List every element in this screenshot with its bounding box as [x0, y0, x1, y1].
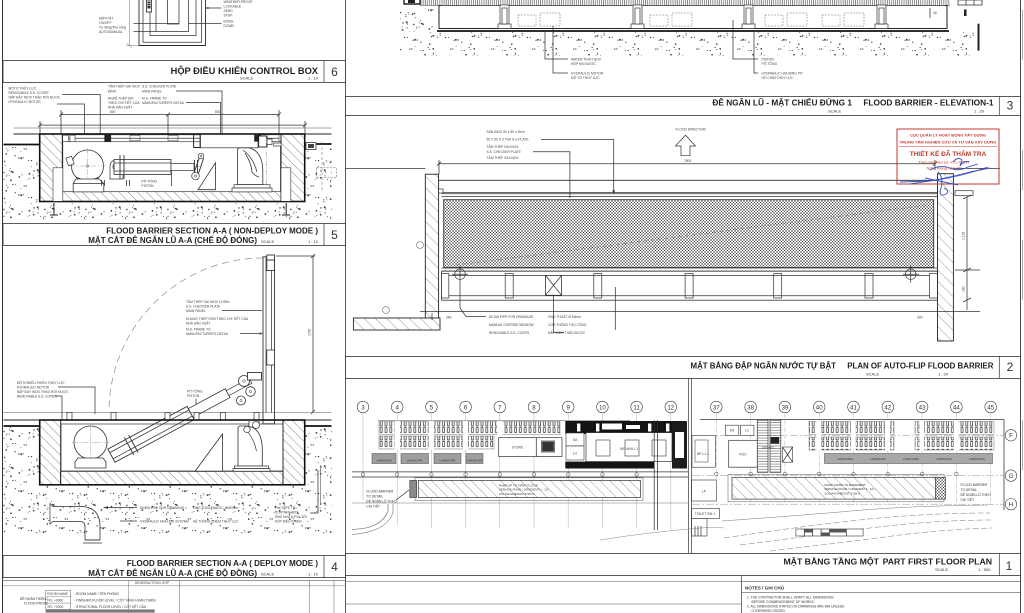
svg-text:DOWN: DOWN [224, 24, 235, 28]
svg-text:HỆ THỐNG CHÊM THỦY LỰC: HỆ THỐNG CHÊM THỦY LỰC [193, 519, 239, 524]
svg-text:ĐÍNH: ĐÍNH [108, 90, 117, 94]
svg-text:MAIN PANEL: MAIN PANEL [186, 309, 206, 313]
svg-text:360: 360 [446, 316, 452, 320]
svg-text:ĐÊ NGĂN LŨ THEO: ĐÊ NGĂN LŨ THEO [961, 492, 992, 497]
svg-text:1 : 10: 1 : 10 [308, 572, 319, 577]
svg-text:MANUFACTURER'S DETAIL: MANUFACTURER'S DETAIL [142, 101, 185, 105]
svg-text:NHÀ SẢN XUẤT: NHÀ SẢN XUẤT [186, 321, 210, 326]
svg-text:5: 5 [331, 228, 338, 242]
svg-text:HỐ CHÌM THỦY LỰC: HỐ CHÌM THỦY LỰC [762, 75, 795, 80]
svg-text:800: 800 [110, 110, 116, 114]
svg-text:NẮP ĐẬY INOX THÁO RỜI ĐƯỢC: NẮP ĐẬY INOX THÁO RỜI ĐƯỢC [17, 389, 69, 394]
svg-text:SFL +0000: SFL +0000 [47, 605, 63, 609]
svg-text:LANDSCAPE: LANDSCAPE [407, 458, 423, 462]
svg-text:1750: 1750 [308, 328, 312, 336]
svg-text:SCALE: SCALE [828, 109, 841, 114]
svg-text:BEFORE COMMENCEMENT OF WORKS.: BEFORE COMMENCEMENT OF WORKS. [752, 600, 815, 604]
svg-text:3: 3 [1007, 99, 1014, 113]
svg-text:1 : 10: 1 : 10 [308, 239, 319, 244]
svg-text:ĐÊ NGĂN LŨ - MẶT CHIẾU ĐỨNG 1: ĐÊ NGĂN LŨ - MẶT CHIẾU ĐỨNG 1 [712, 97, 852, 108]
svg-text:ĐÊ NGĂN LŨ THEO: ĐÊ NGĂN LŨ THEO [366, 499, 397, 504]
svg-text:42: 42 [884, 404, 891, 411]
svg-text:MẶT BẰNG ĐẬP NGĂN NƯỚC TỰ BẬT: MẶT BẰNG ĐẬP NGĂN NƯỚC TỰ BẬT [691, 362, 837, 371]
svg-text:39: 39 [781, 404, 788, 411]
svg-text:6: 6 [331, 65, 338, 79]
svg-text:DA: DA [573, 438, 578, 442]
svg-text:OTHERWISE STATED.: OTHERWISE STATED. [752, 609, 786, 613]
svg-text:PISTON: PISTON [187, 394, 200, 398]
svg-text:ROOM NAME: ROOM NAME [47, 592, 68, 596]
svg-text:TẤM THÉP GAI INOX CHÍNH: TẤM THÉP GAI INOX CHÍNH [186, 299, 230, 304]
svg-text:- ROOM NAME / TÊN PHÒNG: - ROOM NAME / TÊN PHÒNG [74, 591, 119, 596]
svg-text:FLOOD BARRIER: FLOOD BARRIER [961, 483, 989, 487]
svg-text:CONTROL BOX: CONTROL BOX [275, 511, 300, 515]
svg-text:S.S. CHECKER PLATE: S.S. CHECKER PLATE [487, 150, 522, 154]
svg-text:37: 37 [713, 404, 720, 411]
svg-text:7: 7 [498, 404, 502, 411]
svg-text:REMOVABLE S.S. COVER: REMOVABLE S.S. COVER [489, 331, 530, 335]
svg-text:BP-L1-1: BP-L1-1 [697, 452, 709, 456]
svg-text:Tự động/Thủ công: Tự động/Thủ công [99, 26, 126, 30]
svg-text:6: 6 [464, 404, 468, 411]
svg-text:4: 4 [331, 560, 338, 574]
svg-text:PART FIRST FLOOR PLAN: PART FIRST FLOOR PLAN [883, 557, 992, 567]
svg-text:Theo văn bản số: /CC-CO: Theo văn bản số: /CC-CONT [918, 160, 970, 165]
svg-text:F: F [1009, 433, 1013, 440]
svg-text:MAIN PANEL: MAIN PANEL [142, 90, 162, 94]
svg-text:LANDSCAPE: LANDSCAPE [903, 457, 919, 461]
svg-text:1. THE CONTRACTOR SHALL VERIF: 1. THE CONTRACTOR SHALL VERIFY ALL DIMEN… [747, 596, 834, 600]
svg-text:ĐÊ NGĂN THIÊN /: ĐÊ NGĂN THIÊN / [20, 596, 48, 601]
svg-text:LANDSCAPE: LANDSCAPE [969, 457, 985, 461]
svg-text:HYDRAULIC MOTOR: HYDRAULIC MOTOR [571, 72, 604, 76]
svg-text:TRUNG TÂM NGHIÊN CỨU VÀ TƯ VẤN: TRUNG TÂM NGHIÊN CỨU VÀ TƯ VẤN XÂY DỰNG [900, 140, 997, 145]
svg-text:SCALE: SCALE [866, 372, 879, 377]
svg-text:ỒNG THOÁT Ø 80mm: ỒNG THOÁT Ø 80mm [548, 314, 581, 319]
svg-text:2: 2 [1007, 360, 1014, 374]
svg-text:LOCKABLE: LOCKABLE [224, 4, 242, 8]
svg-text:MÁY/TẮT: MÁY/TẮT [99, 16, 113, 21]
svg-text:PISTON: PISTON [142, 184, 155, 188]
svg-text:43: 43 [919, 404, 926, 411]
svg-text:WATER TIGHT BOX: WATER TIGHT BOX [571, 58, 602, 62]
svg-text:NOTES / GHI CHÚ: NOTES / GHI CHÚ [745, 585, 785, 591]
svg-text:3: 3 [361, 404, 365, 411]
svg-text:TẤM THÉP GAI INOX: TẤM THÉP GAI INOX [108, 84, 141, 89]
svg-text:ĐÓNG: ĐÓNG [224, 18, 234, 23]
svg-text:REMOVABLE S.S. COVER: REMOVABLE S.S. COVER [9, 91, 50, 95]
svg-text:5: 5 [430, 404, 434, 411]
svg-text:SCALE: SCALE [935, 567, 948, 572]
svg-text:ỒNG THOÁT NƯỚC Ø 80mm: ỒNG THOÁT NƯỚC Ø 80mm [193, 505, 238, 510]
svg-text:NHÀ SẢN XUẤT: NHÀ SẢN XUẤT [108, 105, 132, 110]
svg-text:LANDSCAPE: LANDSCAPE [440, 458, 456, 462]
svg-text:45: 45 [987, 404, 994, 411]
svg-text:PÍT-TÔNG: PÍT-TÔNG [187, 389, 203, 394]
svg-text:1 : 20: 1 : 20 [974, 109, 985, 114]
svg-text:12: 12 [667, 404, 674, 411]
svg-text:MÔ TƠ THỦY LỰC: MÔ TƠ THỦY LỰC [571, 75, 600, 80]
svg-text:1: 1 [1006, 559, 1013, 573]
svg-text:SCALE: SCALE [240, 76, 253, 81]
svg-text:SÀN INOX 50 x 50 x 3mm: SÀN INOX 50 x 50 x 3mm [487, 130, 526, 134]
svg-text:HYDRAULIC MOTOR: HYDRAULIC MOTOR [17, 386, 50, 390]
svg-text:LANDSCAPE: LANDSCAPE [376, 458, 392, 462]
svg-text:CHI TIẾT: CHI TIẾT [366, 504, 380, 509]
svg-text:HYDRAULIC HOUSING PIT: HYDRAULIC HOUSING PIT [762, 72, 803, 76]
svg-text:80 DIA PIPE FOR DRAINAGE: 80 DIA PIPE FOR DRAINAGE [489, 315, 534, 319]
svg-text:PVC PIPE TO: PVC PIPE TO [275, 506, 296, 510]
svg-text:TẤM THÉP GAI INOX: TẤM THÉP GAI INOX [487, 155, 520, 160]
svg-text:HỘP ĐIỀU KHIỂN CONTROL BOX: HỘP ĐIỀU KHIỂN CONTROL BOX [171, 65, 319, 76]
svg-text:TOILET RM 1: TOILET RM 1 [695, 512, 715, 516]
svg-text:TO DETAIL: TO DETAIL [366, 495, 383, 499]
svg-text:CỤC QUẢN LÝ HOẠT ĐỘNG XÂY DỰNG: CỤC QUẢN LÝ HOẠT ĐỘNG XÂY DỰNG [910, 133, 986, 138]
svg-text:FLOOD-PRONE: FLOOD-PRONE [24, 602, 49, 606]
svg-text:300: 300 [917, 316, 923, 320]
svg-text:80 DIA PIPE FOR DRAINAGE: 80 DIA PIPE FOR DRAINAGE [140, 506, 185, 510]
svg-text:40: 40 [933, 11, 937, 15]
svg-text:SCALE: SCALE [261, 572, 274, 577]
svg-text:S.S. CHECKER PLATE: S.S. CHECKER PLATE [186, 305, 221, 309]
svg-text:7800: 7800 [684, 159, 692, 163]
svg-text:44: 44 [953, 404, 960, 411]
svg-text:AUTO/MANUAL: AUTO/MANUAL [99, 30, 123, 34]
svg-text:DA: DA [730, 429, 735, 433]
svg-text:FLOOD BARRIER: FLOOD BARRIER [366, 490, 394, 494]
svg-text:MẶT CẮT ĐÊ NGĂN LŨ A-A (CHẾ ĐỘ: MẶT CẮT ĐÊ NGĂN LŨ A-A (CHẾ ĐỘ ĐỒNG) [88, 568, 257, 578]
svg-text:SEND: SEND [224, 9, 234, 13]
svg-text:- STRUCTURAL FLOOR LEVEL / CỐT: - STRUCTURAL FLOOR LEVEL / CỐT KẾT CẤU [74, 604, 147, 609]
svg-text:38: 38 [747, 404, 754, 411]
svg-text:FFL +0000: FFL +0000 [47, 599, 63, 603]
svg-text:ỒNG NHỰA PVC TỚI: ỒNG NHỰA PVC TỚI [275, 514, 307, 519]
svg-text:MÔTƠ THỦY LỰC: MÔTƠ THỦY LỰC [9, 86, 37, 91]
svg-text:LO: LO [573, 452, 578, 456]
svg-text:HYDRAULIC HEALING SYSTEM: HYDRAULIC HEALING SYSTEM [140, 520, 189, 524]
svg-text:PISTON: PISTON [762, 58, 775, 62]
svg-text:LC: LC [745, 429, 750, 433]
svg-text:41: 41 [850, 404, 857, 411]
svg-text:COL/AVG/HEIGHT 5.5M H.: COL/AVG/HEIGHT 5.5M H. [824, 491, 861, 495]
svg-text:FLOOD BARRIER SECTION A-A ( NO: FLOOD BARRIER SECTION A-A ( NON-DEPLOY M… [106, 227, 318, 236]
svg-text:FLOOD DIRECTION: FLOOD DIRECTION [676, 128, 707, 132]
svg-text:2. ALL DIMENSIONS STATED ON D: 2. ALL DIMENSIONS STATED ON DRAWINGS ARE… [747, 605, 845, 609]
svg-text:H: H [1009, 502, 1013, 509]
svg-text:CHI TIẾT: CHI TIẾT [961, 497, 975, 502]
svg-text:LANDSCAPE: LANDSCAPE [870, 457, 886, 461]
svg-text:NGHỆ THÉP SIN: NGHỆ THÉP SIN [108, 96, 134, 101]
svg-text:PÍT-TÔNG: PÍT-TÔNG [142, 179, 158, 184]
svg-text:1 : 20: 1 : 20 [938, 372, 949, 377]
svg-text:LANDSCAPE: LANDSCAPE [467, 458, 483, 462]
svg-text:GENERAL/TỔNG HỢP: GENERAL/TỔNG HỢP [135, 580, 170, 585]
svg-text:40: 40 [816, 404, 823, 411]
svg-text:M.S. FRAME TO: M.S. FRAME TO [142, 97, 167, 101]
svg-text:ROC: ROC [739, 453, 747, 457]
svg-text:TẤM THÉP GAI INOX: TẤM THÉP GAI INOX [487, 144, 520, 149]
svg-text:8: 8 [532, 404, 536, 411]
svg-text:1 : 10: 1 : 10 [308, 76, 319, 81]
svg-text:HỘP ĐIỀU KHIỂN: HỘP ĐIỀU KHIỂN [275, 519, 302, 524]
svg-text:4: 4 [395, 404, 399, 411]
svg-text:ON/OFF: ON/OFF [99, 21, 111, 25]
svg-text:LANDSCAPE: LANDSCAPE [936, 457, 952, 461]
svg-text:FLOOD BARRIER SECTION A-A ( DE: FLOOD BARRIER SECTION A-A ( DEPLOY MODE … [127, 559, 319, 568]
svg-text:10: 10 [599, 404, 606, 411]
svg-text:REMOVABLE S.S. COVER: REMOVABLE S.S. COVER [17, 395, 58, 399]
svg-text:- FINISHED FLOOR LEVEL / CỐT T: - FINISHED FLOOR LEVEL / CỐT TẦNG HOÀN T… [74, 598, 156, 603]
svg-text:MÔTƠ/ĐIỀU KHIỂN THỦY LỰC: MÔTƠ/ĐIỀU KHIỂN THỦY LỰC [17, 380, 65, 385]
svg-text:9: 9 [566, 404, 570, 411]
svg-text:KPHUG: KPHUG [762, 446, 774, 450]
svg-text:HYDRAULIC MOTOR: HYDRAULIC MOTOR [9, 100, 42, 104]
svg-text:NẮP ĐẬY INOX THÁO RỜI ĐƯỢC: NẮP ĐẬY INOX THÁO RỜI ĐƯỢC [9, 95, 61, 100]
svg-text:THEO CHI TIẾT CỦA: THEO CHI TIẾT CỦA [108, 100, 140, 105]
svg-text:PLAN OF AUTO-FLIP FLOOD BARRIE: PLAN OF AUTO-FLIP FLOOD BARRIER [847, 362, 994, 371]
svg-text:S.S. CHECKER PLATE: S.S. CHECKER PLATE [142, 85, 177, 89]
svg-text:1.130: 1.130 [962, 232, 966, 240]
svg-text:MANUAL OVERIDE WINDOW: MANUAL OVERIDE WINDOW [489, 323, 535, 327]
svg-text:HỘP KÍN NƯỚC: HỘP KÍN NƯỚC [571, 61, 596, 66]
svg-text:STOP: STOP [224, 13, 234, 17]
svg-text:M.S. FRAME TO: M.S. FRAME TO [186, 328, 211, 332]
svg-text:180: 180 [962, 286, 966, 292]
svg-text:G: G [1009, 473, 1014, 480]
svg-text:11: 11 [633, 404, 640, 411]
svg-text:MANUFACTURER'S DETAIL: MANUFACTURER'S DETAIL [186, 332, 229, 336]
svg-text:KHUNG THÉP SƠN THEO CHI TIẾT C: KHUNG THÉP SƠN THEO CHI TIẾT CỦA [186, 316, 249, 321]
svg-text:PÍT-TÔNG: PÍT-TÔNG [762, 61, 778, 66]
svg-text:50 X 50 X 3 THK S.S.PLATE: 50 X 50 X 3 THK S.S.PLATE [487, 138, 530, 142]
svg-text:MẶT BẰNG TẦNG MỘT: MẶT BẰNG TẦNG MỘT [783, 556, 879, 567]
svg-text:1 : 500: 1 : 500 [978, 567, 991, 572]
svg-text:COL/AVG/HEIGHT 5.5M H.: COL/AVG/HEIGHT 5.5M H. [499, 492, 536, 496]
svg-text:LANDSCAPE: LANDSCAPE [837, 457, 853, 461]
svg-text:MẶT CẮT ĐÊ NGĂN LŨ A-A (CHẾ ĐỘ: MẶT CẮT ĐÊ NGĂN LŨ A-A (CHẾ ĐỘ ĐÓNG) [88, 235, 257, 245]
svg-text:TO DETAIL: TO DETAIL [961, 488, 978, 492]
svg-text:SCALE: SCALE [261, 239, 274, 244]
svg-text:WEATHER-PROOF: WEATHER-PROOF [224, 0, 253, 4]
svg-text:WP-AHU-L1: WP-AHU-L1 [620, 447, 638, 451]
svg-text:STORE: STORE [512, 446, 524, 450]
svg-text:800: 800 [215, 110, 221, 114]
svg-text:FLOOD BARRIER - ELEVATION-1: FLOOD BARRIER - ELEVATION-1 [863, 98, 994, 108]
